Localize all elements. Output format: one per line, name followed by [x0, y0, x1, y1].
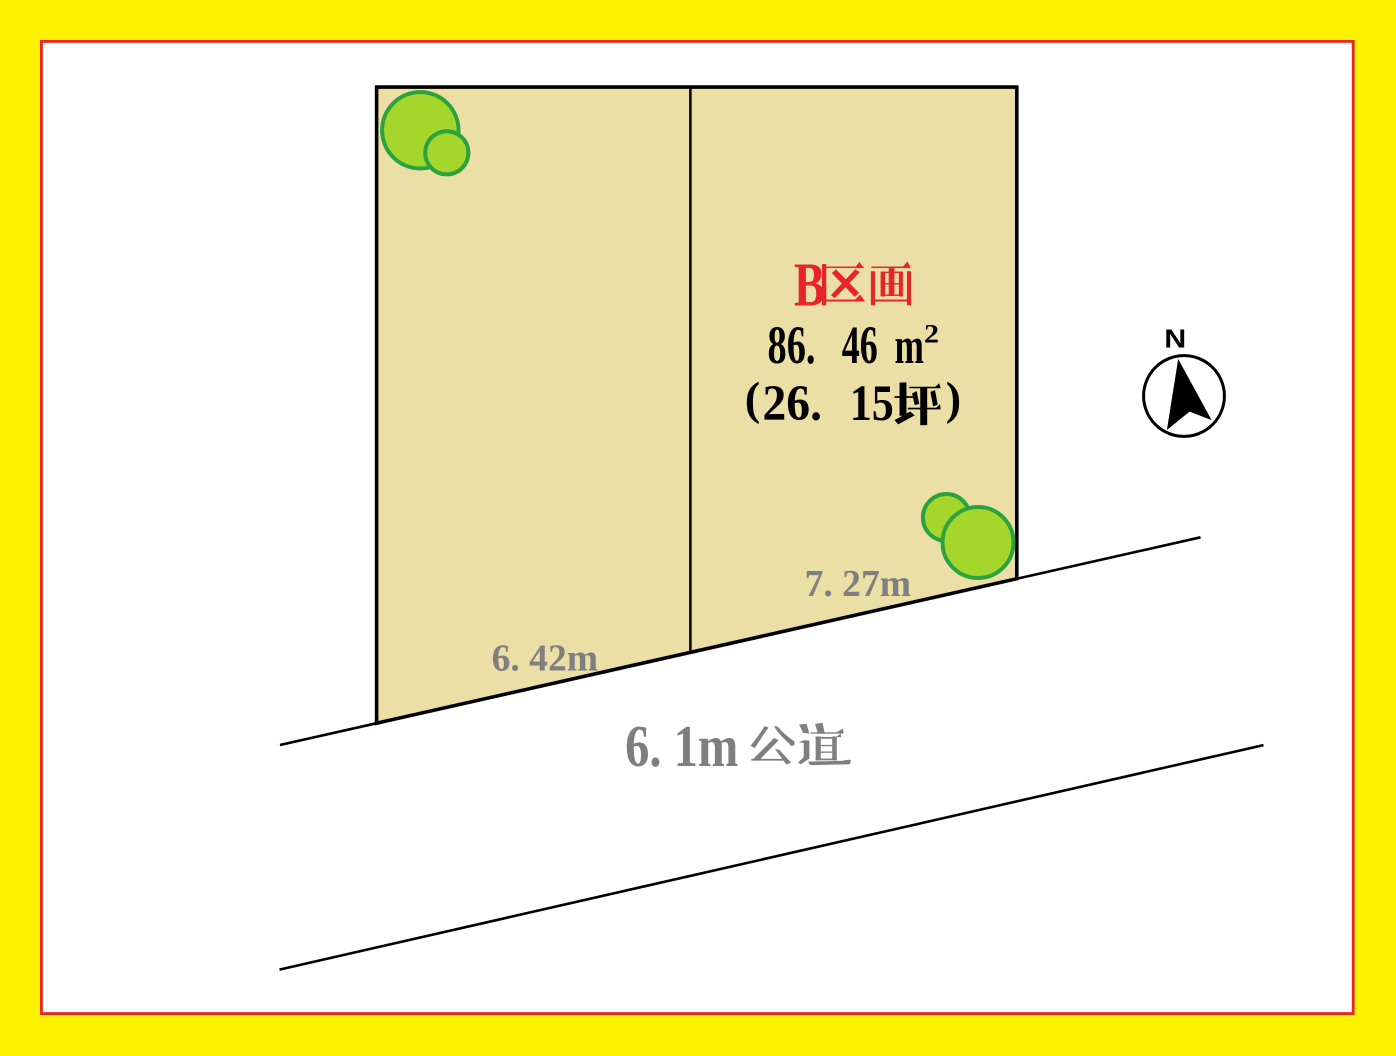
svg-text:6. 1m: 6. 1m: [625, 713, 738, 779]
svg-text:46: 46: [842, 315, 878, 375]
svg-text:m: m: [895, 318, 924, 375]
svg-text:): ): [946, 373, 961, 424]
svg-text:(: (: [745, 373, 760, 424]
svg-text:2: 2: [924, 319, 939, 349]
svg-text:7. 27m: 7. 27m: [805, 564, 911, 605]
svg-text:86.: 86.: [768, 315, 816, 375]
svg-text:B: B: [794, 249, 825, 319]
svg-text:N: N: [1164, 326, 1186, 354]
svg-text:6. 42m: 6. 42m: [492, 638, 598, 679]
svg-text:26.: 26.: [763, 375, 823, 432]
svg-text:15: 15: [850, 375, 894, 432]
